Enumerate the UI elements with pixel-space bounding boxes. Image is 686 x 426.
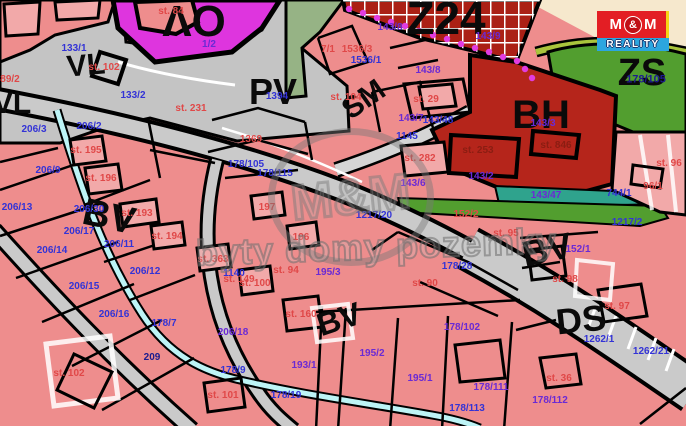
parcel-label: 206/12 bbox=[130, 267, 161, 277]
parcel-label: 143/7 bbox=[398, 114, 423, 124]
parcel-label: st. 160 bbox=[285, 310, 316, 320]
brand-yellow-stripe bbox=[666, 11, 670, 38]
parcel-label: 1262/1 bbox=[584, 335, 615, 345]
parcel-label: 206/15 bbox=[69, 282, 100, 292]
parcel-label: 206/2 bbox=[76, 122, 101, 132]
parcel-label: st. 194 bbox=[151, 232, 182, 242]
parcel-label: 206/17 bbox=[64, 227, 95, 237]
parcel-label: 206/11 bbox=[104, 240, 134, 250]
parcel-label: 133/2 bbox=[120, 91, 145, 101]
parcel-label: 1262/21 bbox=[633, 347, 669, 357]
parcel-label: st. 846 bbox=[540, 141, 571, 151]
parcel-label: 1536/3 bbox=[342, 45, 373, 55]
parcel-label: st. 102 bbox=[53, 369, 84, 379]
parcel-label: st. 231 bbox=[175, 104, 206, 114]
parcel-label: st. 253 bbox=[462, 146, 493, 156]
parcel-label: 143/48 bbox=[423, 116, 454, 126]
zone-label-bv: BV bbox=[313, 297, 365, 341]
parcel-label: st. 98 bbox=[552, 275, 578, 285]
zone-label-z24: Z24 bbox=[406, 0, 485, 41]
parcel-label: 178/105 bbox=[626, 75, 666, 86]
zone-label-bh: BH bbox=[512, 95, 570, 135]
parcel-label: 1394 bbox=[266, 92, 288, 102]
parcel-label: st. 96 bbox=[656, 159, 682, 169]
parcel-label: 143/8 bbox=[377, 23, 402, 33]
watermark-logo-text: M&M bbox=[289, 162, 414, 232]
parcel-label: st. 36 bbox=[546, 374, 572, 384]
parcel-label: 178/102 bbox=[444, 323, 480, 333]
parcel-label: st. 196 bbox=[85, 174, 116, 184]
parcel-label: 195/2 bbox=[359, 349, 384, 359]
parcel-label: 178/7 bbox=[151, 319, 176, 329]
brand-logo: M & M REALITY bbox=[597, 11, 669, 51]
parcel-label: 1217/2 bbox=[612, 218, 643, 228]
parcel-label: 143/3 bbox=[530, 119, 555, 129]
parcel-label: st. 193 bbox=[121, 209, 152, 219]
parcel-label: 178/111 bbox=[473, 383, 508, 393]
parcel-label: 143/47 bbox=[531, 191, 562, 201]
parcel-label: 209 bbox=[144, 353, 161, 363]
parcel-label: 1369 bbox=[240, 135, 262, 145]
parcel-label: 1536/1 bbox=[351, 56, 382, 66]
parcel-label: 178/112 bbox=[532, 396, 568, 406]
parcel-label: st. 102 bbox=[88, 63, 119, 73]
parcel-label: 152/1 bbox=[565, 245, 590, 255]
cadastral-map-screenshot: VLVLOVPVSMZ24BHZSBVBVBVDS133/1133/213942… bbox=[0, 0, 686, 426]
parcel-label: 143/9 bbox=[475, 32, 500, 42]
parcel-label: 143/2 bbox=[468, 172, 493, 182]
parcel-label: 178/113 bbox=[449, 404, 485, 414]
zone-label-vl: VL bbox=[0, 89, 31, 119]
parcel-label: 206/14 bbox=[37, 246, 68, 256]
parcel-label: 206/13 bbox=[2, 203, 33, 213]
parcel-label: 1/2 bbox=[202, 40, 216, 50]
parcel-label: st. 90 bbox=[412, 279, 438, 289]
parcel-label: 206/9 bbox=[35, 166, 60, 176]
parcel-label: 206/18 bbox=[218, 328, 249, 338]
brand-m-right: M bbox=[644, 16, 657, 33]
parcel-label: 744/1 bbox=[606, 189, 631, 199]
parcel-label: st. 104 bbox=[330, 93, 361, 103]
parcel-label: st. 101 bbox=[207, 391, 238, 401]
parcel-label: st. 84 bbox=[158, 7, 184, 17]
parcel-label: 206/16 bbox=[99, 310, 130, 320]
parcel-label: st. 97 bbox=[604, 302, 630, 312]
parcel-label: 96/1 bbox=[643, 182, 662, 192]
parcel-label: 143/8 bbox=[415, 66, 440, 76]
parcel-label: 206/30 bbox=[74, 205, 105, 215]
parcel-label: 193/1 bbox=[291, 361, 316, 371]
brand-logo-reality: REALITY bbox=[597, 38, 669, 51]
parcel-label: 178/19 bbox=[271, 391, 302, 401]
parcel-label: st. 29 bbox=[413, 95, 439, 105]
parcel-label: 206/3 bbox=[21, 125, 46, 135]
parcel-label: 133/1 bbox=[61, 44, 86, 54]
parcel-label: st. 195 bbox=[70, 146, 101, 156]
parcel-label: st. 100 bbox=[239, 279, 270, 289]
parcel-label: 152/2 bbox=[453, 210, 478, 220]
parcel-label: 7/1 bbox=[321, 45, 335, 55]
parcel-label: 195/1 bbox=[407, 374, 432, 384]
brand-logo-mm: M & M bbox=[597, 11, 669, 38]
ampersand-icon: & bbox=[624, 16, 642, 34]
brand-m-left: M bbox=[610, 16, 623, 33]
parcel-label: 178/9 bbox=[220, 366, 245, 376]
parcel-label: 89/2 bbox=[0, 75, 19, 85]
